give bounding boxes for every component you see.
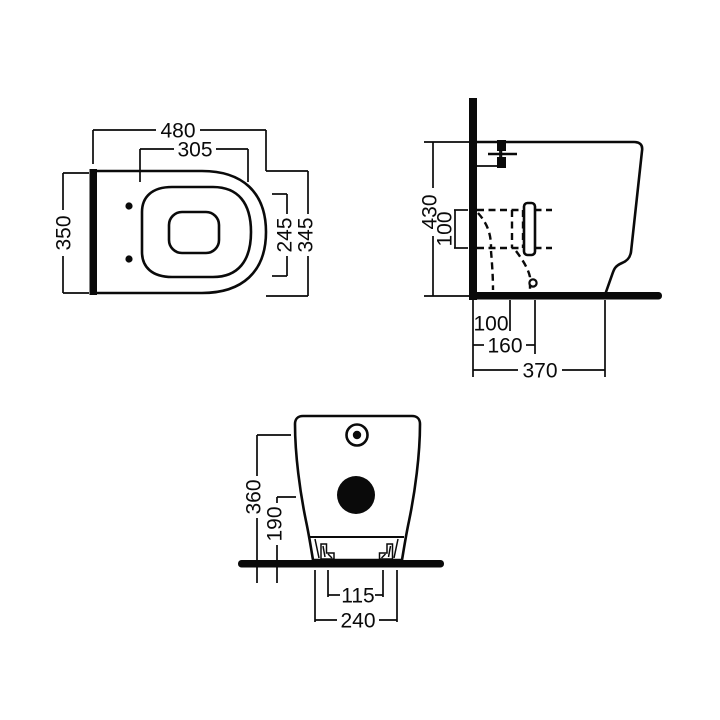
- dim-label: 100: [434, 211, 457, 246]
- back-edge-bar: [90, 169, 98, 295]
- dim-side-depth: 370: [473, 360, 605, 383]
- dim-base-width: 240: [315, 610, 397, 633]
- dim-seat-depth: 245: [272, 194, 297, 276]
- drain-circle: [337, 476, 375, 514]
- dim-drain-height: 190: [264, 497, 296, 583]
- dim-label: 100: [473, 313, 508, 336]
- wall-line: [469, 98, 477, 300]
- dim-label: 160: [487, 335, 522, 358]
- dim-label: 350: [53, 215, 76, 250]
- dim-label: 245: [274, 217, 297, 252]
- hinge-hole: [125, 202, 132, 209]
- floor-line: [469, 292, 662, 300]
- dim-label: 370: [522, 360, 557, 383]
- technical-drawing: 480 305 350 245: [0, 0, 720, 720]
- dim-outlet-wall-distance: 160: [473, 335, 535, 358]
- dim-label: 305: [177, 139, 212, 162]
- dim-label: 115: [341, 585, 374, 608]
- front-view: 360 190 115 240: [238, 416, 444, 633]
- dim-label: 190: [264, 506, 287, 541]
- dim-outlet-floor-offset: 100: [473, 313, 508, 336]
- water-inlet-dot: [353, 431, 361, 439]
- dim-overall-depth: 350: [53, 173, 89, 293]
- dim-label: 240: [340, 610, 375, 633]
- side-view: 430 100 100 160 370: [419, 98, 662, 383]
- body-outline: [93, 171, 266, 293]
- hinge-hole: [125, 255, 132, 262]
- outlet-flange: [524, 203, 535, 255]
- dim-label: 360: [243, 479, 266, 514]
- bowl-opening: [169, 212, 219, 253]
- top-view: 480 305 350 245: [53, 120, 318, 296]
- seat-ring: [142, 187, 251, 277]
- dim-label: 345: [295, 217, 318, 252]
- dim-fixing-spacing: 115: [328, 585, 383, 608]
- dim-outlet-diameter: 100: [434, 210, 468, 248]
- fixing-hole: [529, 279, 536, 286]
- outlet-hidden-lines: [477, 210, 552, 290]
- floor-line: [238, 560, 444, 568]
- drawing-canvas: 480 305 350 245: [0, 0, 720, 720]
